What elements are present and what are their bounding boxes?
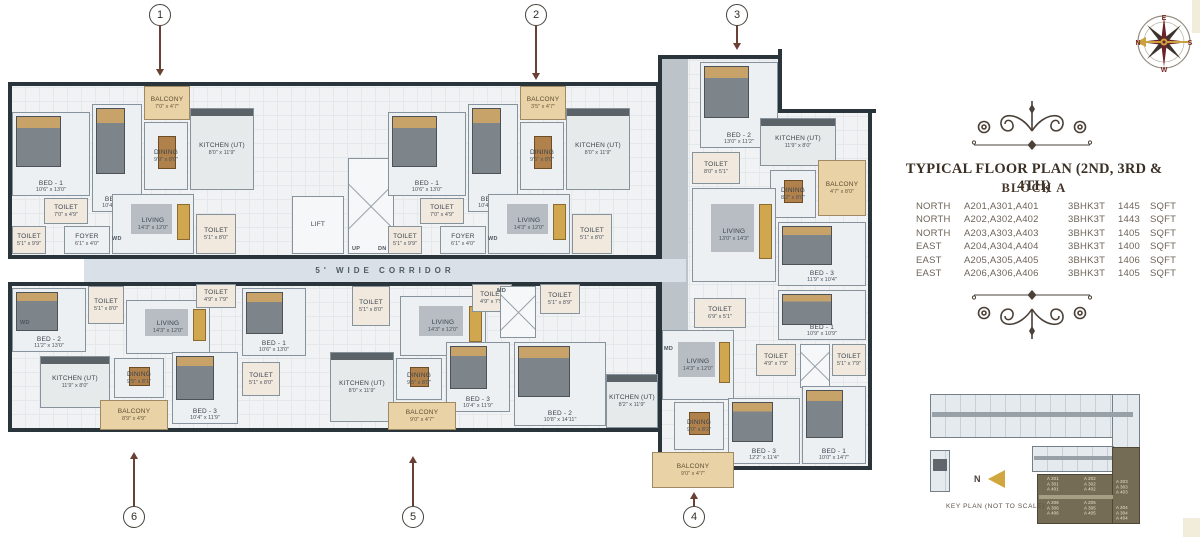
room-foyer: FOYER6'1" x 4'0" [440,226,486,254]
room-label: KITCHEN (UT)8'0" x 11'9" [191,109,253,189]
keyplan-unit-6: A 204 A 304 A 404 [1116,506,1128,522]
room-living: LIVING14'3" x 12'0" [662,330,734,400]
keyplan-unit-5: A 205 A 305 A 405 [1084,501,1096,517]
keyplan-unit-4: A 206 A 306 A 406 [1047,501,1059,517]
room-dining: DINING9'0" x 8'2" [674,402,724,450]
bed-icon [704,66,749,118]
room-label: TOILET7'0" x 4'9" [421,199,463,223]
room-toilet: TOILET5'1" x 8'0" [196,214,236,254]
room-dining: DINING9'9" x 8'0" [144,122,188,190]
north-arrow-icon [988,470,1005,488]
room-label: BALCONY4'7" x 8'0" [819,161,865,215]
callout-arrow-6 [130,452,138,459]
mark-wd: WD [20,320,30,326]
keyplan-unit-2: A 202 A 302 A 402 [1084,477,1096,493]
room-label: BALCONY8'9" x 4'9" [101,401,167,429]
room-bed-1: BED - 110'9" x 10'9" [778,290,866,340]
keyplan-unit-3: A 203 A 303 A 403 [1116,480,1128,496]
mark-wd: WD [112,236,122,242]
callout-arrow-3 [733,43,741,50]
bed-icon [782,226,832,265]
room-label: BALCONY3'5" x 4'7" [521,87,565,119]
room-balcony: BALCONY8'9" x 4'9" [100,400,168,430]
room-toilet: TOILET8'0" x 5'1" [692,152,740,184]
room-kitchen-ut: KITCHEN (UT)11'9" x 8'0" [760,118,836,166]
keyplan-small-block [930,450,950,492]
room-label: BALCONY7'0" x 4'7" [145,87,189,119]
room-label: TOILET5'1" x 9'9" [389,227,421,253]
room-foyer: FOYER6'1" x 4'0" [64,226,110,254]
room-label: TOILET5'1" x 9'9" [13,227,45,253]
sofa-icon [177,204,189,240]
callout-2: 2 [525,4,547,26]
callout-arrow-5 [409,456,417,463]
mark-md: MD [497,288,506,294]
rug-icon [507,204,549,234]
room-label: FOYER6'1" x 4'0" [441,227,485,253]
sofa-icon [193,309,206,341]
room-toilet: TOILET5'1" x 7'9" [832,344,866,376]
rug-icon [131,204,173,234]
room-label: FOYER6'1" x 4'0" [65,227,109,253]
room-kitchen-ut: KITCHEN (UT)8'0" x 11'9" [566,108,630,190]
keyplan-corridor-top [932,412,1133,417]
dining-table-icon [534,136,552,168]
room-kitchen-ut: KITCHEN (UT)8'0" x 11'9" [330,352,394,422]
sofa-icon [553,204,565,240]
bed-icon [450,346,487,389]
dining-table-icon [784,180,803,203]
room-living: LIVING14'3" x 12'0" [126,300,210,354]
room-label: TOILET5'1" x 8'9" [541,285,579,313]
mark-dn: DN [378,246,387,252]
page: { "colors":{"wall":"#2a343b","balcony_ta… [0,0,1200,537]
room-toilet: TOILET4'9" x 7'9" [756,344,796,376]
room-toilet: TOILET5'1" x 8'0" [572,214,612,254]
callout-line-3 [736,26,738,44]
room-dining: DINING9'5" x 8'0" [396,358,442,400]
room-toilet: TOILET5'1" x 9'9" [388,226,422,254]
room-label: TOILET6'9" x 5'1" [695,299,745,327]
keyplan-right-column [1112,394,1140,449]
east-wing-notch [778,49,876,113]
rug-icon [711,204,754,252]
room-toilet: TOILET5'1" x 8'0" [88,286,124,324]
dining-table-icon [129,367,149,386]
keyplan: N KEY PLAN (NOT TO SCALE) A 201 A 301 A … [0,0,1200,537]
keyplan-caption: KEY PLAN (NOT TO SCALE) [946,503,1045,510]
mark-md: MD [664,346,673,352]
room-dining: DINING9'5" x 8'0" [520,122,564,190]
room-toilet: TOILET5'1" x 8'0" [242,362,280,396]
room-kitchen-ut: KITCHEN (UT)8'0" x 11'9" [190,108,254,190]
room-dining: DINING8'2" x 8'0" [770,170,816,218]
callout-line-1 [159,26,161,70]
rug-icon [678,342,714,377]
bed-icon [472,108,501,174]
room-label: TOILET5'1" x 8'0" [353,287,389,325]
callout-line-5 [412,462,414,506]
keyplan-small-block-core [933,459,947,471]
callout-line-4 [693,498,695,506]
bed-icon [96,108,125,174]
sofa-icon [759,204,772,259]
bed-icon [806,390,843,438]
dining-table-icon [410,367,429,387]
room-toilet: TOILET5'1" x 8'9" [540,284,580,314]
room-stair [800,344,830,388]
keyplan-north-label: N [974,474,981,484]
room-label: BALCONY9'0" x 4'7" [389,403,455,429]
callout-3: 3 [726,4,748,26]
room-bed-3: BED - 310'4" x 11'9" [172,352,238,424]
rug-icon [145,309,188,336]
room-label: KITCHEN (UT)8'2" x 11'9" [607,375,657,427]
room-balcony: BALCONY3'5" x 4'7" [520,86,566,120]
room-label: TOILET5'1" x 8'0" [243,363,279,395]
sofa-icon [719,342,730,383]
bed-icon [246,292,283,334]
room-bed-3: BED - 312'2" x 11'4" [728,398,800,464]
room-label: TOILET4'9" x 7'9" [757,345,795,375]
room-label: KITCHEN (UT)8'0" x 11'9" [567,109,629,189]
room-label: BALCONY9'0" x 4'7" [653,453,733,487]
callout-arrow-4 [690,492,698,499]
mark-up: UP [352,246,360,252]
callout-line-2 [535,26,537,74]
room-bed-3: BED - 311'9" x 10'4" [778,222,866,286]
bed-icon [392,116,437,167]
room-label: TOILET5'1" x 8'0" [573,215,611,253]
bed-icon [16,116,61,167]
keyplan-corridor-highlight [1039,495,1113,499]
room-toilet: TOILET7'0" x 4'9" [420,198,464,224]
room-label: TOILET5'1" x 7'9" [833,345,865,375]
bed-icon [518,346,570,397]
room-bed-1: BED - 110'0" x 14'7" [802,386,866,464]
room-label: KITCHEN (UT)11'9" x 8'0" [41,357,109,407]
room-label: TOILET4'9" x 7'9" [197,285,235,307]
room-bed-1: BED - 110'6" x 13'0" [12,112,90,196]
room-balcony: BALCONY9'0" x 4'7" [652,452,734,488]
room-toilet: TOILET7'0" x 4'9" [44,198,88,224]
mark-wd: WD [488,236,498,242]
callout-line-6 [133,458,135,506]
room-label: TOILET5'1" x 8'0" [89,287,123,323]
room-dining: DINING9'5" x 8'1" [114,358,164,398]
bed-icon [782,294,832,325]
room-bed-1: BED - 110'6" x 13'0" [242,288,306,356]
room-balcony: BALCONY9'0" x 4'7" [388,402,456,430]
callout-1: 1 [149,4,171,26]
dining-table-icon [689,412,709,435]
room-label: TOILET8'0" x 5'1" [693,153,739,183]
room-toilet: TOILET5'1" x 8'0" [352,286,390,326]
room-label: LIFT [293,197,343,253]
callout-4: 4 [683,506,705,528]
room-label: TOILET7'0" x 4'9" [45,199,87,223]
room-balcony: BALCONY7'0" x 4'7" [144,86,190,120]
room-bed-2: BED - 210'8" x 14'11" [514,342,606,426]
room-label: KITCHEN (UT)8'0" x 11'9" [331,353,393,421]
room-toilet: TOILET5'1" x 9'9" [12,226,46,254]
callout-5: 5 [402,506,424,528]
bed-icon [732,402,773,442]
room-balcony: BALCONY4'7" x 8'0" [818,160,866,216]
rug-icon [419,306,463,336]
room-toilet: TOILET4'9" x 7'9" [196,284,236,308]
dining-table-icon [158,136,176,168]
callout-6: 6 [123,506,145,528]
room-living: LIVING14'3" x 12'0" [112,194,194,254]
room-label: KITCHEN (UT)11'9" x 8'0" [761,119,835,165]
callout-arrow-2 [532,73,540,80]
room-kitchen-ut: KITCHEN (UT)8'2" x 11'9" [606,374,658,428]
room-toilet: TOILET6'9" x 5'1" [694,298,746,328]
keyplan-corridor-mid [1034,456,1112,460]
room-lift: LIFT [292,196,344,254]
room-label: TOILET5'1" x 8'0" [197,215,235,253]
keyplan-unit-1: A 201 A 301 A 401 [1047,477,1059,493]
room-bed-1: BED - 110'6" x 13'0" [388,112,466,196]
room-living: LIVING13'0" x 14'3" [692,188,776,282]
room-living: LIVING14'3" x 12'0" [488,194,570,254]
callout-arrow-1 [156,69,164,76]
bed-icon [176,356,214,400]
